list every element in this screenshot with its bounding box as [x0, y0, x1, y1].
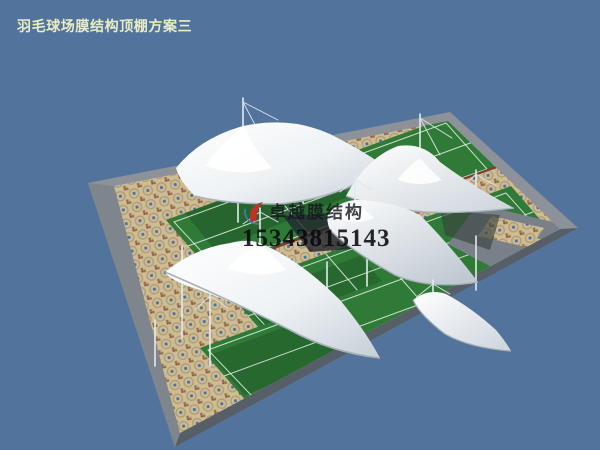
- render-viewport: 卓越膜结构 15343815143 羽毛球场膜结构顶棚方案三: [0, 0, 600, 450]
- watermark-phone-text: 15343815143: [242, 225, 391, 252]
- scene-3d-render: 卓越膜结构 15343815143 羽毛球场膜结构顶棚方案三: [0, 0, 600, 450]
- page-title: 羽毛球场膜结构顶棚方案三: [17, 18, 192, 34]
- watermark-company-text: 卓越膜结构: [269, 202, 364, 222]
